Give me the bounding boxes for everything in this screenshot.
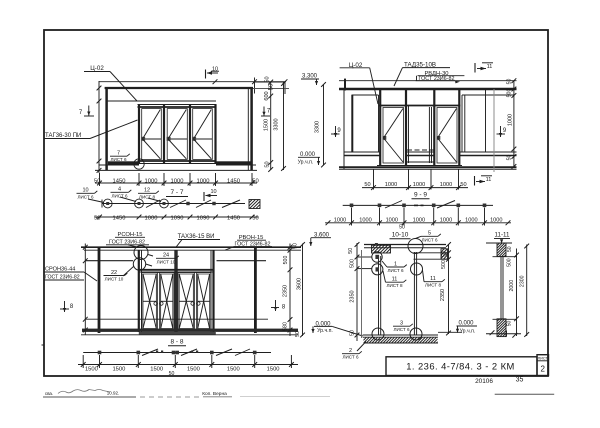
svg-text:1450: 1450 [113,216,126,222]
svg-text:ЛИСТ 6: ЛИСТ 6 [387,268,404,273]
svg-text:1000: 1000 [440,217,452,223]
svg-text:1000: 1000 [465,217,477,223]
svg-text:1500: 1500 [227,367,240,373]
svg-text:50: 50 [507,79,513,85]
svg-text:ЛИСТ 6: ЛИСТ 6 [111,193,128,198]
svg-text:3: 3 [400,321,403,327]
svg-text:500: 500 [441,260,447,269]
svg-text:1000: 1000 [334,217,346,223]
svg-text:10: 10 [210,189,216,195]
svg-text:1000: 1000 [171,178,184,184]
svg-text:2: 2 [349,348,352,354]
svg-text:50: 50 [295,331,301,337]
svg-text:1000: 1000 [413,182,425,188]
svg-text:50: 50 [94,216,100,222]
svg-text:9 - 9: 9 - 9 [414,192,427,199]
svg-text:1000: 1000 [385,182,397,188]
svg-text:ЛИСТ 8: ЛИСТ 8 [386,283,403,288]
svg-text:1090: 1090 [171,216,184,222]
svg-text:4: 4 [118,187,121,193]
svg-text:8 - 8: 8 - 8 [170,339,183,346]
svg-text:3600: 3600 [296,278,302,290]
svg-text:7 - 7: 7 - 7 [170,189,183,196]
svg-text:5: 5 [428,231,431,237]
svg-text:1000: 1000 [145,178,158,184]
svg-text:2350: 2350 [440,289,446,301]
svg-text:22: 22 [111,270,117,276]
svg-text:24: 24 [163,253,169,259]
svg-text:1090: 1090 [197,216,210,222]
svg-text:11: 11 [430,276,436,282]
svg-text:500: 500 [506,258,512,267]
svg-text:ГОСТ 23И6-82: ГОСТ 23И6-82 [419,76,455,82]
svg-text:2: 2 [540,365,545,374]
svg-text:1450: 1450 [113,178,126,184]
svg-text:3300: 3300 [273,118,279,130]
svg-text:50: 50 [293,243,299,249]
svg-text:2300: 2300 [520,275,526,287]
svg-text:1000: 1000 [386,217,398,223]
svg-text:11: 11 [486,177,492,183]
svg-text:1450: 1450 [227,178,240,184]
svg-text:50: 50 [507,321,513,327]
svg-text:20106: 20106 [475,378,493,385]
svg-text:500: 500 [283,256,289,265]
svg-text:Ур.ч.п.: Ур.ч.п. [298,160,314,166]
svg-text:1000: 1000 [145,216,158,222]
svg-text:580: 580 [282,322,288,331]
svg-text:1500: 1500 [187,367,200,373]
svg-text:ЛИСТ 6: ЛИСТ 6 [77,194,94,199]
svg-text:1450: 1450 [227,216,240,222]
svg-text:1000: 1000 [490,217,502,223]
svg-text:1: 1 [394,261,397,267]
svg-text:50: 50 [364,182,370,188]
svg-text:1000: 1000 [359,217,371,223]
svg-text:1. 236. 4-7/84. 3 - 2 КМ: 1. 236. 4-7/84. 3 - 2 КМ [406,361,515,372]
svg-text:50: 50 [460,182,466,188]
svg-text:2350: 2350 [283,285,289,297]
svg-text:2000: 2000 [509,280,515,292]
svg-text:1500: 1500 [85,367,98,373]
svg-text:50: 50 [399,224,405,230]
svg-text:1000: 1000 [508,114,514,126]
svg-text:10.92.: 10.92. [107,391,120,396]
svg-text:ЛИСТ 10: ЛИСТ 10 [105,277,124,282]
svg-text:ЛИСТ: ЛИСТ [538,356,549,360]
svg-text:50: 50 [252,216,258,222]
svg-text:50: 50 [441,251,447,257]
svg-text:11-11: 11-11 [495,232,510,239]
svg-text:500: 500 [507,89,513,98]
svg-text:1500: 1500 [264,119,270,131]
svg-text:50: 50 [350,330,356,336]
svg-text:сва.: сва. [45,391,53,396]
svg-text:500: 500 [349,259,355,268]
svg-text:50: 50 [169,371,175,377]
svg-text:50: 50 [264,161,270,167]
svg-text:35: 35 [516,377,524,384]
svg-text:1000: 1000 [440,182,452,188]
svg-text:ЛИСТ 8: ЛИСТ 8 [139,194,156,199]
svg-text:Ц-02: Ц-02 [90,65,104,72]
svg-text:50: 50 [348,248,354,254]
svg-text:ЛИСТ 6: ЛИСТ 6 [110,157,127,162]
svg-text:Ур.ч.п.: Ур.ч.п. [317,328,333,334]
svg-text:ЛИСТ 8: ЛИСТ 8 [425,283,442,288]
svg-text:Ур.ч.п.: Ур.ч.п. [460,328,476,334]
svg-text:600: 600 [264,91,270,100]
svg-text:10: 10 [82,188,88,194]
svg-text:50: 50 [507,246,513,252]
svg-text:1500: 1500 [150,367,163,373]
svg-text:11: 11 [392,277,398,283]
svg-text:ЛИСТ 6: ЛИСТ 6 [342,355,359,360]
svg-text:2350: 2350 [349,290,355,302]
svg-text:1000: 1000 [197,178,210,184]
svg-text:7: 7 [117,151,120,157]
svg-text:11: 11 [487,64,493,70]
svg-text:ЛИСТ 6: ЛИСТ 6 [393,327,410,332]
svg-text:50: 50 [507,155,513,161]
svg-text:Коп. Верна: Коп. Верна [202,391,227,397]
svg-text:ЛИСТ 6: ЛИСТ 6 [421,237,438,242]
svg-text:ЛИСТ 10: ЛИСТ 10 [157,259,176,264]
svg-text:3300: 3300 [315,121,321,133]
svg-text:1000: 1000 [413,217,425,223]
svg-text:50: 50 [252,178,258,184]
svg-text:10-10: 10-10 [392,232,409,239]
svg-text:12: 12 [144,188,150,194]
svg-text:1500: 1500 [112,367,125,373]
svg-text:1500: 1500 [267,367,280,373]
